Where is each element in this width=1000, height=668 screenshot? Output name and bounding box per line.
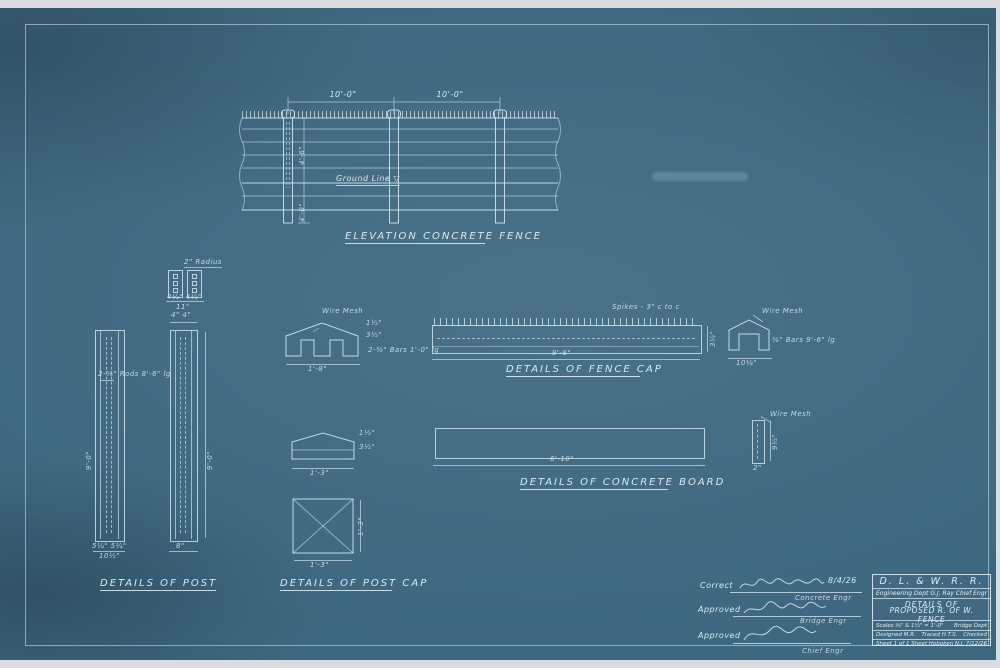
signature-2-script xyxy=(742,600,828,616)
signature-3-role: Chief Engr xyxy=(802,648,843,656)
concrete-board-height-dim: 9½" xyxy=(772,434,780,450)
elevation-caption: ELEVATION CONCRETE FENCE xyxy=(345,231,485,244)
title-block: D. L. & W. R. R. Engineering Dept G.J. R… xyxy=(872,574,991,646)
fence-cap-spikes-label: Spikes - 3" c to c xyxy=(612,304,680,312)
title-chief-engr: G.J. Ray Chief Engr xyxy=(930,590,987,597)
post-cap-side-dim-bottom: 3½" xyxy=(359,444,375,452)
post-cap-bars-label: 2-⅜" Bars 1'-0" lg xyxy=(368,347,439,355)
elevation-span-dim-1: 10'-0" xyxy=(318,91,368,100)
fence-cap-end-section xyxy=(727,316,773,354)
post-left-height-dim: 9'-0" xyxy=(86,451,94,470)
elevation-drawing xyxy=(228,88,572,238)
fence-cap-caption: DETAILS OF FENCE CAP xyxy=(506,364,640,377)
title-sheet: Sheet 1 of 1 Sheet xyxy=(876,641,927,647)
signature-2-prefix: Approved xyxy=(698,606,741,615)
signature-1-prefix: Correct xyxy=(700,582,733,591)
fence-cap-section-width-dim: 10¼" xyxy=(736,360,757,368)
elevation-height-dim: 4'-6" xyxy=(299,146,307,165)
title-designed: Designed M.R. xyxy=(876,632,916,638)
concrete-board-caption: DETAILS OF CONCRETE BOARD xyxy=(520,477,668,490)
signature-1-date: 8/4/26 xyxy=(828,577,857,586)
signature-1-script xyxy=(738,576,826,592)
faint-stamp xyxy=(652,172,748,181)
post-cap-plan-height-dim: 1'-3" xyxy=(358,517,366,536)
post-cap-plan-width-dim: 1'-3" xyxy=(310,562,329,570)
concrete-board-end-section xyxy=(752,420,765,464)
signature-3-script xyxy=(740,624,820,644)
post-cap-front-section xyxy=(283,318,363,360)
fence-cap-wire-mesh-label: Wire Mesh xyxy=(762,308,803,316)
concrete-board-width-dim: 2" xyxy=(753,465,762,473)
signature-3-prefix: Approved xyxy=(698,632,741,641)
post-cap-caption: DETAILS OF POST CAP xyxy=(280,578,392,591)
post-cap-front-width-dim: 1'-8" xyxy=(308,366,327,374)
title-traced: Traced H.T.S. xyxy=(922,632,958,638)
concrete-board-length-dim: 6'-10" xyxy=(550,456,574,464)
post-cap-side-elevation xyxy=(290,428,356,462)
ground-line-label: Ground Line ▽ xyxy=(336,175,400,186)
post-right-elevation xyxy=(170,330,198,542)
scan-edge-bottom xyxy=(0,660,1000,668)
title-location: Hoboken N.J. xyxy=(929,641,964,647)
post-right-height-dim: 9'-0" xyxy=(207,451,215,470)
elevation-span-dim-2: 10'-0" xyxy=(425,91,475,100)
post-cap-side-width-dim: 1'-3" xyxy=(310,470,329,478)
post-left-bottom-total: 10½" xyxy=(99,553,120,561)
post-rods-label: 2-⅝" Rods 8'-6" lg xyxy=(98,371,171,379)
post-left-bottom-dims: 5¼" 5¼" xyxy=(92,543,127,551)
scan-edge-top xyxy=(0,0,1000,8)
post-cap-wire-mesh-label: Wire Mesh xyxy=(322,308,363,316)
post-caption: DETAILS OF POST xyxy=(100,578,216,591)
fence-cap-depth-dim: 3½" xyxy=(710,331,718,347)
title-date: 7/12/26 xyxy=(966,641,987,647)
post-left-elevation xyxy=(95,330,125,542)
fence-cap-bars-label: ⅜" Bars 9'-6" lg xyxy=(772,337,835,345)
post-right-top-dims: 4" 4" xyxy=(171,312,191,320)
post-radius-label: 2" Radius xyxy=(184,259,222,268)
post-cap-side-dim-top: 1½" xyxy=(359,430,375,438)
title-scales: Scales ⅜" & 1½" = 1'-0" xyxy=(876,623,944,629)
post-cap-plan xyxy=(292,498,354,554)
elevation-depth-dim: 4'-0" xyxy=(299,203,307,222)
title-railroad: D. L. & W. R. R. xyxy=(873,575,990,589)
scan-edge-right xyxy=(996,0,1000,668)
post-right-bottom-total: 8" xyxy=(176,543,185,551)
title-office: Bridge Dept xyxy=(954,623,987,629)
post-section-dims: 4¼" 4¼" xyxy=(167,294,202,302)
post-cap-side-dim-bottom-2: 3½" xyxy=(366,332,382,340)
concrete-board-wire-mesh-label: Wire Mesh xyxy=(770,411,811,419)
post-cap-side-dim-top-2: 1½" xyxy=(366,320,382,328)
fence-cap-length-dim: 9'-8" xyxy=(552,350,571,358)
title-dept: Engineering Dept xyxy=(876,590,928,597)
title-subject-2: PROPOSED R. OF W. FENCE xyxy=(873,609,990,621)
title-checked: Checked xyxy=(963,632,987,638)
